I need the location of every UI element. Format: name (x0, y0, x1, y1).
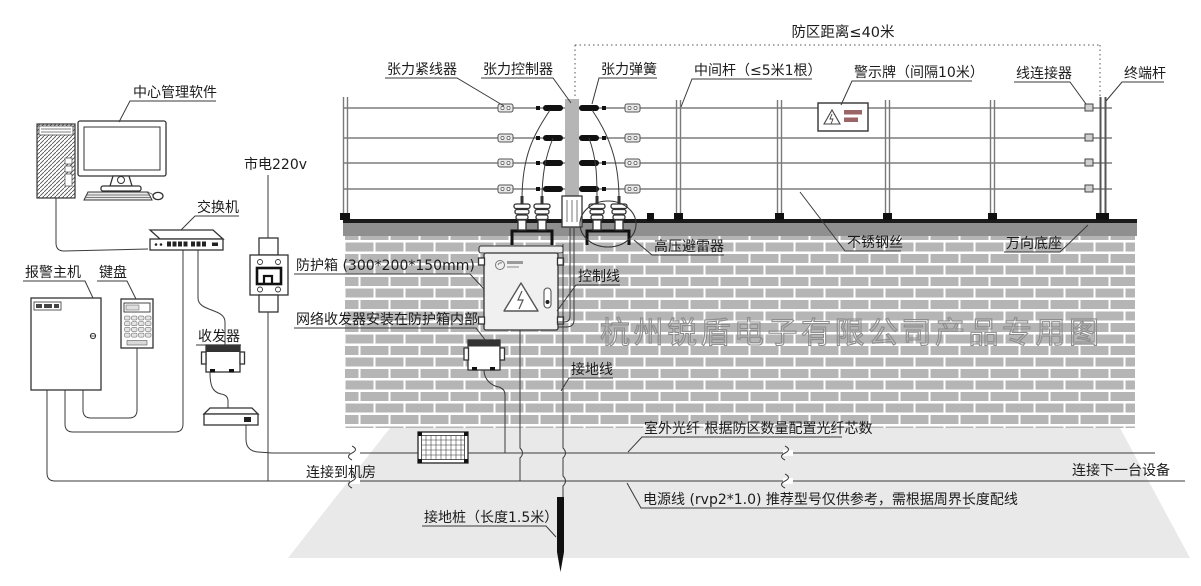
alarm-to-perimeter-wire (47, 390, 55, 481)
outdoor-fiber-label: 室外光纤 根据防区数量配置光纤芯数 (644, 420, 872, 437)
alarm-keypad (121, 299, 153, 348)
transceiver-label: 收发器 (198, 329, 240, 345)
switch-label: 交换机 (197, 199, 239, 216)
ground-wire-label: 接地线 (571, 361, 613, 378)
tension-fence-system-diagram: 杭州锐盾电子有限公司产品专用图 (0, 0, 1201, 586)
alarm-host-label: 报警主机 (25, 265, 81, 281)
stainless-wire-label: 不锈钢丝 (847, 235, 903, 251)
middle-post (674, 100, 683, 220)
network-switch (150, 230, 223, 250)
management-computer (37, 121, 166, 200)
media-converter (204, 408, 258, 425)
watermark-text: 杭州锐盾电子有限公司产品专用图 (600, 316, 1103, 351)
transceiver-to-converter-wire (210, 372, 228, 408)
middle-post-label: 中间杆（≤5米1根） (694, 63, 822, 79)
terminal-post (1096, 97, 1109, 220)
wall-cap (343, 223, 1137, 236)
grounding-stake (557, 497, 564, 572)
wire-connector-icons (1085, 104, 1093, 192)
control-wire-label: 控制线 (578, 269, 620, 285)
latch-handle (544, 288, 551, 308)
fence-wires (344, 108, 1112, 189)
hv-arrester-label: 高压避雷器 (654, 238, 724, 255)
middle-post (988, 100, 997, 220)
tension-controller-post (562, 99, 582, 227)
tension-spring-label: 张力弹簧 (601, 62, 657, 78)
transceiver-device (202, 345, 245, 373)
fence-posts (340, 97, 1109, 221)
power-wire-label: 电源线 (rvp2*1.0) 推荐型号仅供参考，需根据周界长度配线 (643, 491, 1018, 508)
warning-sign-label: 警示牌（间隔10米） (854, 64, 984, 81)
monitor (78, 121, 166, 191)
connect-room-label: 连接到机房 (306, 464, 376, 481)
protection-box (479, 246, 564, 330)
protection-box-label: 防护箱 (300*200*150mm) (296, 258, 475, 274)
zone-distance-label: 防区距离≤40米 (791, 24, 895, 41)
end-post (340, 97, 350, 220)
terminal-post-label: 终端杆 (1124, 66, 1166, 82)
connect-next-label: 连接下一台设备 (1072, 462, 1170, 479)
alarm-host-box (31, 298, 101, 390)
pc-to-switch-wire (56, 198, 148, 251)
center-software-label: 中心管理软件 (133, 85, 217, 101)
cable-clamp (647, 213, 654, 221)
ground-stake-label: 接地桩（长度1.5米） (424, 509, 558, 526)
wall-top-rail (343, 219, 1137, 223)
grounding-grid-plate (418, 432, 468, 463)
diagram-canvas: 杭州锐盾电子有限公司产品专用图 (0, 0, 1201, 586)
wire-connector-label: 线连接器 (1016, 65, 1072, 82)
middle-post (883, 100, 892, 220)
tension-controller-label: 张力控制器 (483, 62, 553, 78)
tensioner-label: 张力紧线器 (387, 62, 457, 78)
middle-post (775, 100, 784, 220)
mains-label: 市电220v (244, 156, 307, 173)
keypad-label: 键盘 (99, 264, 127, 281)
warning-sign (818, 103, 868, 131)
keyboard (84, 192, 152, 200)
computer-tower (37, 124, 75, 198)
network-transceiver (464, 340, 505, 371)
circuit-breaker (250, 238, 288, 312)
network-transceiver-note-label: 网络收发器安装在防护箱内部 (296, 312, 478, 328)
universal-base-label: 万向底座 (1006, 236, 1062, 252)
